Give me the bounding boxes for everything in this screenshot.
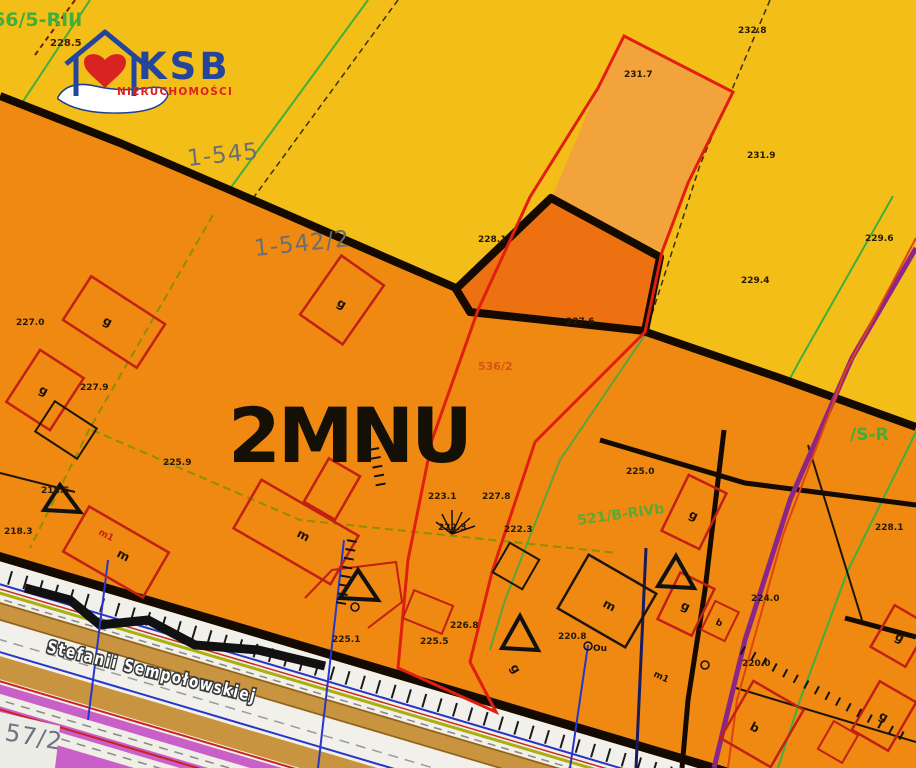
elevation-label: 223.1 [428,492,456,502]
symbol-label: Ou [593,644,607,654]
elevation-label: 225.5 [420,637,448,647]
elevation-label: 222.3 [438,523,466,533]
elevation-label: 224.0 [751,594,779,604]
land-class-label: 66/5-RIII [0,9,82,31]
zone-label: 2MNU [228,391,470,480]
parcel-number-label: 536/2 [478,360,513,373]
elevation-label: 225.1 [332,635,360,645]
land-class-label: /S-R [850,425,889,445]
elevation-label: 218.5 [41,486,69,496]
elevation-label: 220.8 [558,632,586,642]
elevation-label: 229.4 [741,276,769,286]
elevation-label: 227.8 [482,492,510,502]
elevation-label: 231.9 [747,151,775,161]
logo-subtitle-text: NIERUCHOMOŚCI [117,85,233,98]
elevation-label: 232.8 [738,26,766,36]
elevation-label: 226.8 [450,621,478,631]
elevation-label: 225.9 [163,458,191,468]
elevation-label: 228.5 [50,38,82,49]
elevation-label: 227.9 [80,383,108,393]
elevation-label: 228.1 [478,235,506,245]
elevation-label: 228.1 [875,523,903,533]
elevation-label: 227.0 [16,318,44,328]
zoning-map: Stefanii Sempołowskiej 57/2 g g g m m m … [0,0,916,768]
elevation-label: 227.6 [566,317,594,327]
zoning-map-canvas: Stefanii Sempołowskiej 57/2 g g g m m m … [0,0,916,768]
elevation-label: 220.0 [742,659,770,669]
logo-brand-text: KSB [138,45,231,88]
elevation-label: 229.6 [865,234,893,244]
elevation-label: 231.7 [624,70,652,80]
elevation-label: 218.3 [4,527,32,537]
elevation-label: 222.3 [504,525,532,535]
elevation-label: 225.0 [626,467,654,477]
